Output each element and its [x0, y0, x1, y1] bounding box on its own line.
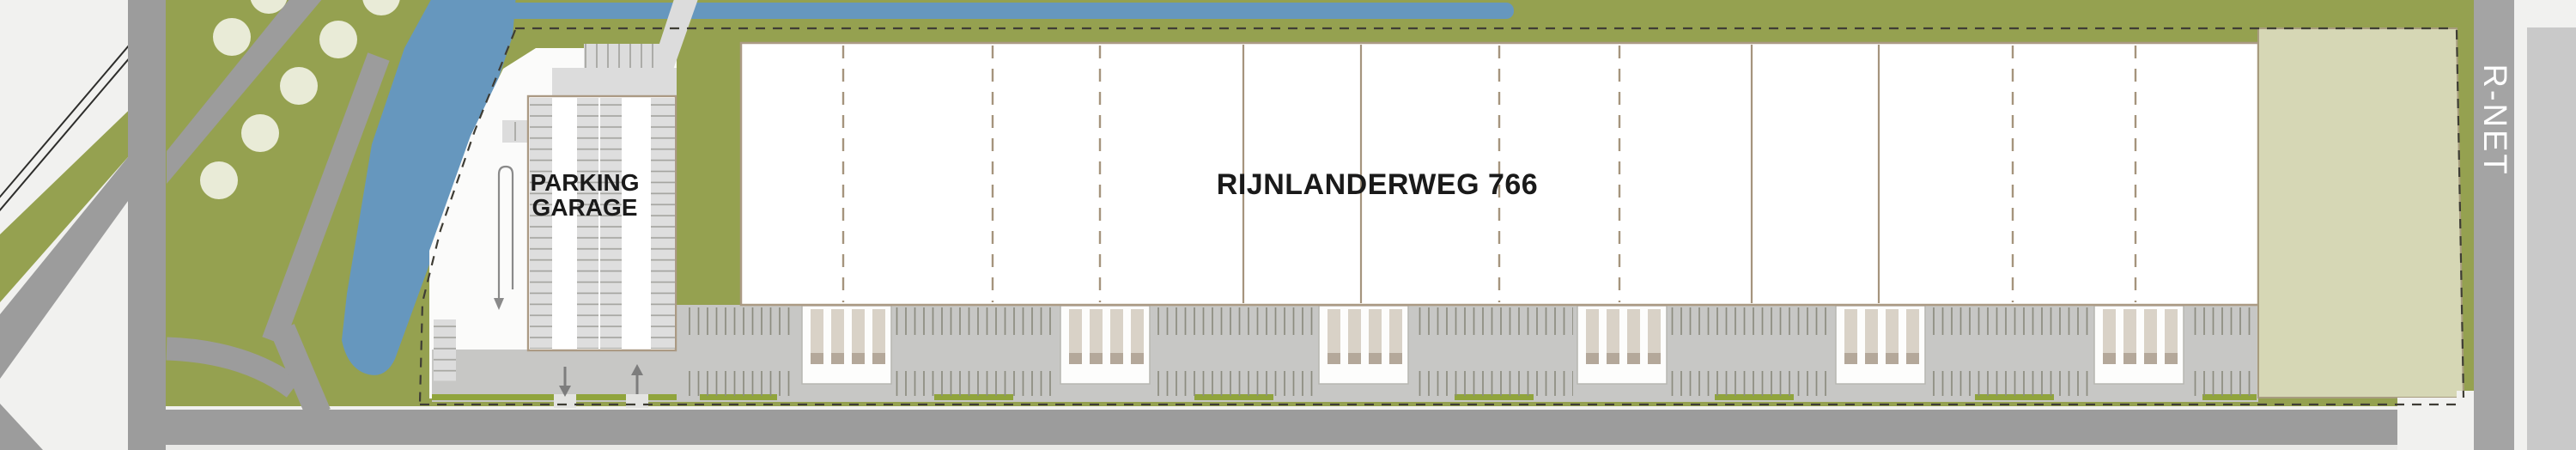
bottom-road: [164, 410, 2397, 445]
dock-door: [1348, 353, 1361, 364]
truck-slot: [1886, 309, 1899, 353]
tree: [241, 114, 279, 152]
parking-row: [1153, 307, 1315, 335]
truck-slot: [2165, 309, 2178, 353]
right-edge-strip: [2527, 27, 2576, 450]
dock-bay: [1319, 306, 1408, 384]
stall-column-c-lines: [651, 98, 675, 349]
truck-slot: [1586, 309, 1599, 353]
dock-door: [811, 353, 823, 364]
truck-slot: [1607, 309, 1619, 353]
garage-label-line2: GARAGE: [532, 194, 638, 221]
dock-door: [1069, 353, 1082, 364]
parking-row: [1670, 307, 1832, 335]
parking-row: [895, 371, 1056, 396]
hedge: [648, 394, 677, 400]
dock-door: [1886, 353, 1899, 364]
truck-slot: [852, 309, 865, 353]
dock-door: [2165, 353, 2178, 364]
dock-door: [1648, 353, 1661, 364]
dock-door: [1369, 353, 1382, 364]
truck-slot: [2103, 309, 2116, 353]
dock-door: [1131, 353, 1144, 364]
building-label: RIJNLANDERWEG 766: [1217, 168, 1538, 201]
dock-door: [831, 353, 844, 364]
dock-bay: [1577, 306, 1667, 384]
truck-slot: [872, 309, 885, 353]
truck-slot: [1648, 309, 1661, 353]
truck-slot: [811, 309, 823, 353]
canal-strip: [481, 3, 1514, 19]
dock-door: [1586, 353, 1599, 364]
parking-row: [1929, 371, 2090, 396]
truck-slot: [1327, 309, 1340, 353]
white-patch-2: [2457, 391, 2474, 450]
truck-slot: [1865, 309, 1878, 353]
hedge: [576, 394, 626, 400]
parking-row: [895, 307, 1056, 335]
truck-slot: [1131, 309, 1144, 353]
rnet-label: R-NET: [2476, 64, 2512, 176]
truck-slot: [1090, 309, 1103, 353]
site-plan: RIJNLANDERWEG 766 PARKING GARAGE R-NET: [0, 0, 2576, 450]
dock-door: [2103, 353, 2116, 364]
garage-top-driveway: [552, 68, 677, 97]
truck-slot: [1627, 309, 1640, 353]
parking-row: [688, 371, 797, 396]
beige-parcel: [2258, 28, 2464, 398]
dock-door: [1627, 353, 1640, 364]
dock-door: [1389, 353, 1402, 364]
truck-slot: [1110, 309, 1123, 353]
dock-door: [1090, 353, 1103, 364]
truck-slot: [1389, 309, 1402, 353]
top-parking-ticks: [584, 44, 663, 68]
site-plan-canvas: RIJNLANDERWEG 766 PARKING GARAGE R-NET: [0, 0, 2576, 450]
dock-door: [1607, 353, 1619, 364]
stall-column-a-lines: [530, 98, 552, 349]
garage-label-line1: PARKING: [530, 169, 639, 196]
truck-slot: [831, 309, 844, 353]
parking-row: [1670, 371, 1832, 396]
truck-slot: [2144, 309, 2157, 353]
dock-door: [872, 353, 885, 364]
parking-row: [1929, 307, 2090, 335]
dock-door: [1865, 353, 1878, 364]
parking-row: [2189, 307, 2255, 335]
dock-door: [2144, 353, 2157, 364]
garage-apron: [432, 350, 677, 402]
dock-door: [1844, 353, 1857, 364]
dock-bay: [2094, 306, 2184, 384]
dock-door: [1110, 353, 1123, 364]
tree: [213, 18, 251, 56]
truck-slot: [1906, 309, 1919, 353]
truck-slot: [1844, 309, 1857, 353]
bottom-road-shoulder: [166, 445, 2397, 450]
dock-door: [1327, 353, 1340, 364]
tree: [200, 161, 238, 199]
dock-bay: [1060, 306, 1150, 384]
tree: [319, 21, 357, 58]
parking-row: [688, 307, 797, 335]
vertical-road: [128, 0, 166, 450]
dock-door: [852, 353, 865, 364]
parking-row: [1412, 371, 1573, 396]
tree: [280, 67, 318, 105]
parking-row: [1412, 307, 1573, 335]
exit-gap: [626, 394, 648, 408]
dock-door: [1906, 353, 1919, 364]
parking-row: [1153, 371, 1315, 396]
truck-slot: [1348, 309, 1361, 353]
hedge: [432, 394, 555, 400]
dock-bay: [802, 306, 891, 384]
truck-slot: [1069, 309, 1082, 353]
parking-row: [2189, 371, 2255, 396]
west-stall-lines: [434, 319, 456, 381]
dock-bay: [1836, 306, 1925, 384]
dock-door: [2123, 353, 2136, 364]
truck-slot: [2123, 309, 2136, 353]
truck-slot: [1369, 309, 1382, 353]
